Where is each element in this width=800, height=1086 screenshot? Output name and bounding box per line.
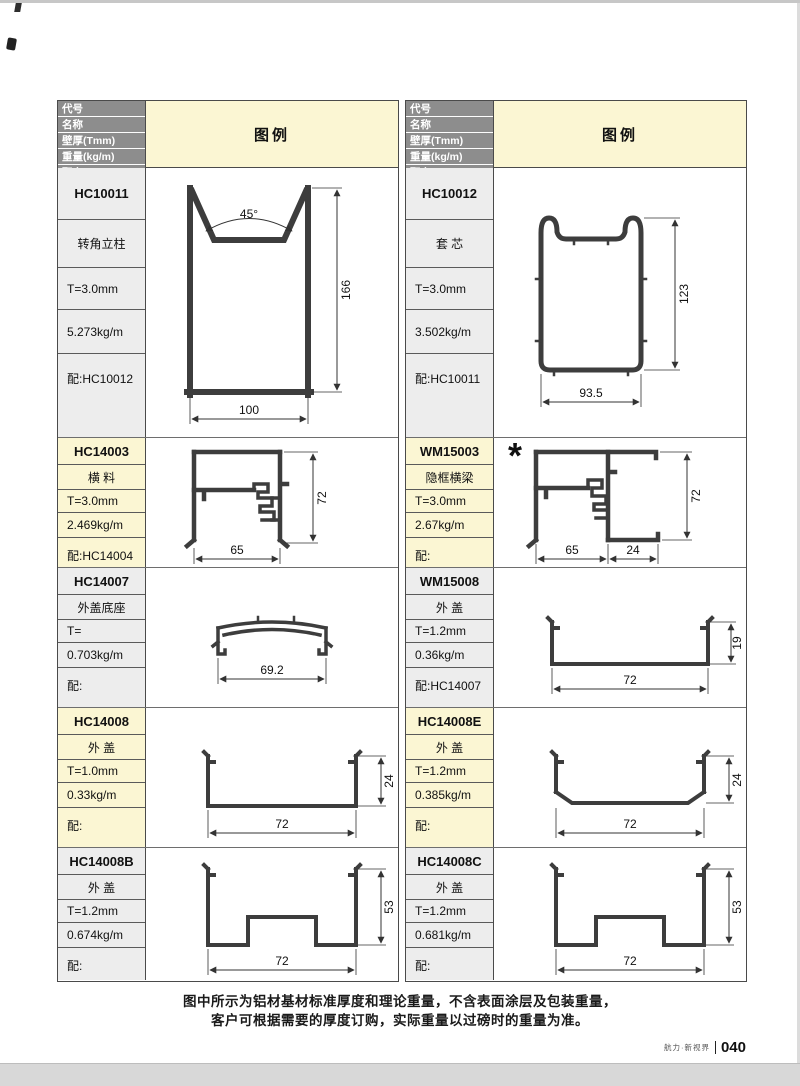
weight-cell: 2.67kg/m <box>406 513 493 538</box>
thickness-cell: T=3.0mm <box>58 490 145 513</box>
profile-outline <box>552 752 708 803</box>
name-cell: 外 盖 <box>58 875 145 900</box>
dim-width-label: 72 <box>623 817 637 831</box>
dim-height-label: 19 <box>730 636 744 650</box>
legend-header: 图例 <box>146 101 398 167</box>
profile-diagram-hc14008b: 72 53 <box>146 849 398 979</box>
code-cell: HC14008B <box>58 848 145 875</box>
page-number: 040 <box>721 1039 746 1056</box>
thickness-cell: T=1.0mm <box>58 760 145 783</box>
code-cell: HC10011 <box>58 168 145 220</box>
dim-height-label: 53 <box>730 900 744 914</box>
dim-height-label: 72 <box>689 489 703 503</box>
profile-row-wm15008: WM15008 外 盖 T=1.2mm 0.36kg/m 配:HC14007 7… <box>406 568 746 708</box>
name-cell: 外 盖 <box>406 595 493 620</box>
label-column: HC10012 套 芯 T=3.0mm 3.502kg/m 配:HC10011 <box>406 168 494 437</box>
diagram-area: 45° 166 100 <box>146 168 398 437</box>
name-cell: 套 芯 <box>406 220 493 268</box>
dim-width2-label: 24 <box>626 543 640 557</box>
code-cell: HC14003 <box>58 438 145 465</box>
footnote-line-2: 客户可根据需要的厚度订购，实际重量以过磅时的重量为准。 <box>0 1011 800 1030</box>
thickness-cell: T= <box>58 620 145 643</box>
weight-cell: 0.703kg/m <box>58 643 145 668</box>
match-cell: 配:HC10011 <box>406 354 493 437</box>
dim-width-label: 93.5 <box>579 386 603 400</box>
weight-cell: 3.502kg/m <box>406 310 493 354</box>
footer-divider <box>715 1041 716 1054</box>
footnote-line-1: 图中所示为铝材基材标准厚度和理论重量，不含表面涂层及包装重量， <box>0 992 800 1011</box>
diagram-area: 72 53 <box>494 848 746 980</box>
profile-outline <box>204 865 360 945</box>
profile-diagram-hc10012: 123 93.5 <box>502 183 738 423</box>
label-column: WM15003 隐框横梁 T=3.0mm 2.67kg/m 配: <box>406 438 494 567</box>
profile-row-hc14007: HC14007 外盖底座 T= 0.703kg/m 配: 69.2 <box>58 568 398 708</box>
diagram-area: * 72 65 24 <box>494 438 746 567</box>
header-cell-code: 代号 <box>58 101 145 117</box>
catalog-table-right: 代号 名称 壁厚(Tmm) 重量(kg/m) 配套 图例 HC10012 套 芯… <box>405 100 747 982</box>
dimension-annotations: 72 53 <box>208 869 396 975</box>
dimension-annotations: 69.2 <box>218 658 326 684</box>
code-cell: HC14008E <box>406 708 493 735</box>
dim-width-label: 69.2 <box>260 663 284 677</box>
match-cell: 配:HC14004 <box>58 538 145 567</box>
dim-height-label: 53 <box>382 900 396 914</box>
header-cell-weight: 重量(kg/m) <box>406 149 493 165</box>
profile-outline <box>213 617 331 654</box>
profile-row-hc14008b: HC14008B 外 盖 T=1.2mm 0.674kg/m 配: 72 <box>58 848 398 980</box>
diagram-area: 72 65 <box>146 438 398 567</box>
scan-artifact-mark <box>6 37 17 50</box>
match-cell: 配: <box>406 538 493 567</box>
label-column: HC14003 横 料 T=3.0mm 2.469kg/m 配:HC14004 <box>58 438 146 567</box>
header-label-column: 代号 名称 壁厚(Tmm) 重量(kg/m) 配套 <box>58 101 146 167</box>
label-column: HC14008B 外 盖 T=1.2mm 0.674kg/m 配: <box>58 848 146 980</box>
match-cell: 配: <box>406 948 493 980</box>
thickness-cell: T=3.0mm <box>58 268 145 310</box>
footnote: 图中所示为铝材基材标准厚度和理论重量，不含表面涂层及包装重量， 客户可根据需要的… <box>0 992 800 1030</box>
label-column: HC14008 外 盖 T=1.0mm 0.33kg/m 配: <box>58 708 146 847</box>
code-cell: HC14008C <box>406 848 493 875</box>
weight-cell: 0.33kg/m <box>58 783 145 808</box>
profile-row-hc14008e: HC14008E 外 盖 T=1.2mm 0.385kg/m 配: 72 <box>406 708 746 848</box>
dim-width-label: 72 <box>623 673 637 687</box>
dimension-annotations: 72 19 <box>552 622 744 694</box>
profile-outline <box>536 218 646 375</box>
legend-header: 图例 <box>494 101 746 167</box>
thickness-cell: T=3.0mm <box>406 490 493 513</box>
weight-cell: 2.469kg/m <box>58 513 145 538</box>
table-header: 代号 名称 壁厚(Tmm) 重量(kg/m) 配套 图例 <box>58 101 398 168</box>
name-cell: 转角立柱 <box>58 220 145 268</box>
profile-diagram-wm15008: 72 19 <box>494 570 746 706</box>
weight-cell: 0.385kg/m <box>406 783 493 808</box>
diagram-area: 72 53 <box>146 848 398 980</box>
label-column: HC14008E 外 盖 T=1.2mm 0.385kg/m 配: <box>406 708 494 847</box>
dim-width-label: 72 <box>623 954 637 968</box>
table-header: 代号 名称 壁厚(Tmm) 重量(kg/m) 配套 图例 <box>406 101 746 168</box>
dim-angle-label: 45° <box>240 207 258 221</box>
profile-row-wm15003: WM15003 隐框横梁 T=3.0mm 2.67kg/m 配: * <box>406 438 746 568</box>
profile-row-hc14008c: HC14008C 外 盖 T=1.2mm 0.681kg/m 配: 72 <box>406 848 746 980</box>
profile-outline <box>552 865 708 945</box>
profile-diagram-hc14003: 72 65 <box>148 440 396 566</box>
dimension-annotations: 123 93.5 <box>541 218 691 407</box>
header-cell-code: 代号 <box>406 101 493 117</box>
diagram-area: 72 24 <box>494 708 746 847</box>
code-cell: WM15008 <box>406 568 493 595</box>
diagram-area: 72 19 <box>494 568 746 707</box>
weight-cell: 0.36kg/m <box>406 643 493 668</box>
thickness-cell: T=1.2mm <box>406 900 493 923</box>
profile-outline <box>529 452 658 546</box>
dimension-annotations: 72 65 24 <box>536 452 703 564</box>
match-cell: 配:HC14007 <box>406 668 493 707</box>
code-cell: HC10012 <box>406 168 493 220</box>
profile-diagram-wm15003: 72 65 24 <box>496 440 744 566</box>
dimension-annotations: 72 24 <box>556 756 744 838</box>
dimension-annotations: 72 53 <box>556 869 744 975</box>
profile-diagram-hc14008c: 72 53 <box>494 849 746 979</box>
name-cell: 外 盖 <box>406 875 493 900</box>
dim-height-label: 166 <box>339 279 353 299</box>
name-cell: 隐框横梁 <box>406 465 493 490</box>
asterisk-note-mark: * <box>508 438 522 478</box>
match-cell: 配: <box>406 808 493 847</box>
weight-cell: 5.273kg/m <box>58 310 145 354</box>
label-column: WM15008 外 盖 T=1.2mm 0.36kg/m 配:HC14007 <box>406 568 494 707</box>
catalog-table-left: 代号 名称 壁厚(Tmm) 重量(kg/m) 配套 图例 HC10011 转角立… <box>57 100 399 982</box>
diagram-area: 69.2 <box>146 568 398 707</box>
dim-width-label: 65 <box>565 543 579 557</box>
name-cell: 横 料 <box>58 465 145 490</box>
weight-cell: 0.674kg/m <box>58 923 145 948</box>
label-column: HC14008C 外 盖 T=1.2mm 0.681kg/m 配: <box>406 848 494 980</box>
name-cell: 外 盖 <box>58 735 145 760</box>
profile-row-hc10011: HC10011 转角立柱 T=3.0mm 5.273kg/m 配:HC10012… <box>58 168 398 438</box>
profile-outline <box>204 752 360 806</box>
profile-diagram-hc14008e: 72 24 <box>494 710 746 846</box>
profile-row-hc14003: HC14003 横 料 T=3.0mm 2.469kg/m 配:HC14004 <box>58 438 398 568</box>
match-cell: 配: <box>58 948 145 980</box>
match-cell: 配: <box>58 668 145 707</box>
code-cell: HC14007 <box>58 568 145 595</box>
profile-diagram-hc14007: 69.2 <box>146 570 398 706</box>
match-cell: 配:HC10012 <box>58 354 145 437</box>
code-cell: HC14008 <box>58 708 145 735</box>
header-label-column: 代号 名称 壁厚(Tmm) 重量(kg/m) 配套 <box>406 101 494 167</box>
weight-cell: 0.681kg/m <box>406 923 493 948</box>
page-footer: 航力·新视界 040 <box>664 1039 746 1056</box>
label-column: HC10011 转角立柱 T=3.0mm 5.273kg/m 配:HC10012 <box>58 168 146 437</box>
header-cell-name: 名称 <box>406 117 493 133</box>
header-cell-name: 名称 <box>58 117 145 133</box>
page-edge-bottom <box>0 1063 800 1086</box>
profile-row-hc14008: HC14008 外 盖 T=1.0mm 0.33kg/m 配: 72 <box>58 708 398 848</box>
thickness-cell: T=1.2mm <box>406 620 493 643</box>
code-cell: WM15003 <box>406 438 493 465</box>
diagram-area: 123 93.5 <box>494 168 746 437</box>
header-cell-thickness: 壁厚(Tmm) <box>58 133 145 149</box>
profile-diagram-hc14008: 72 24 <box>146 710 398 846</box>
profile-outline <box>548 618 712 664</box>
profile-outline <box>187 452 287 546</box>
brand-slogan: 航力·新视界 <box>664 1042 710 1053</box>
dim-width-label: 72 <box>275 817 289 831</box>
diagram-area: 72 24 <box>146 708 398 847</box>
thickness-cell: T=1.2mm <box>406 760 493 783</box>
thickness-cell: T=3.0mm <box>406 268 493 310</box>
header-cell-weight: 重量(kg/m) <box>58 149 145 165</box>
scan-artifact-mark <box>14 3 22 12</box>
dim-width-label: 100 <box>239 403 259 417</box>
profile-diagram-hc10011: 45° 166 100 <box>154 176 390 430</box>
dimension-annotations: 72 24 <box>208 756 396 838</box>
name-cell: 外盖底座 <box>58 595 145 620</box>
dim-width-label: 72 <box>275 954 289 968</box>
profile-row-hc10012: HC10012 套 芯 T=3.0mm 3.502kg/m 配:HC10011 … <box>406 168 746 438</box>
dim-height-label: 72 <box>315 491 329 505</box>
dimension-annotations: 45° 166 100 <box>190 188 353 424</box>
header-cell-thickness: 壁厚(Tmm) <box>406 133 493 149</box>
name-cell: 外 盖 <box>406 735 493 760</box>
page-edge-top <box>0 0 800 3</box>
dim-height-label: 24 <box>730 773 744 787</box>
dim-width-label: 65 <box>230 543 244 557</box>
match-cell: 配: <box>58 808 145 847</box>
dim-height-label: 123 <box>677 283 691 303</box>
thickness-cell: T=1.2mm <box>58 900 145 923</box>
dim-height-label: 24 <box>382 774 396 788</box>
label-column: HC14007 外盖底座 T= 0.703kg/m 配: <box>58 568 146 707</box>
